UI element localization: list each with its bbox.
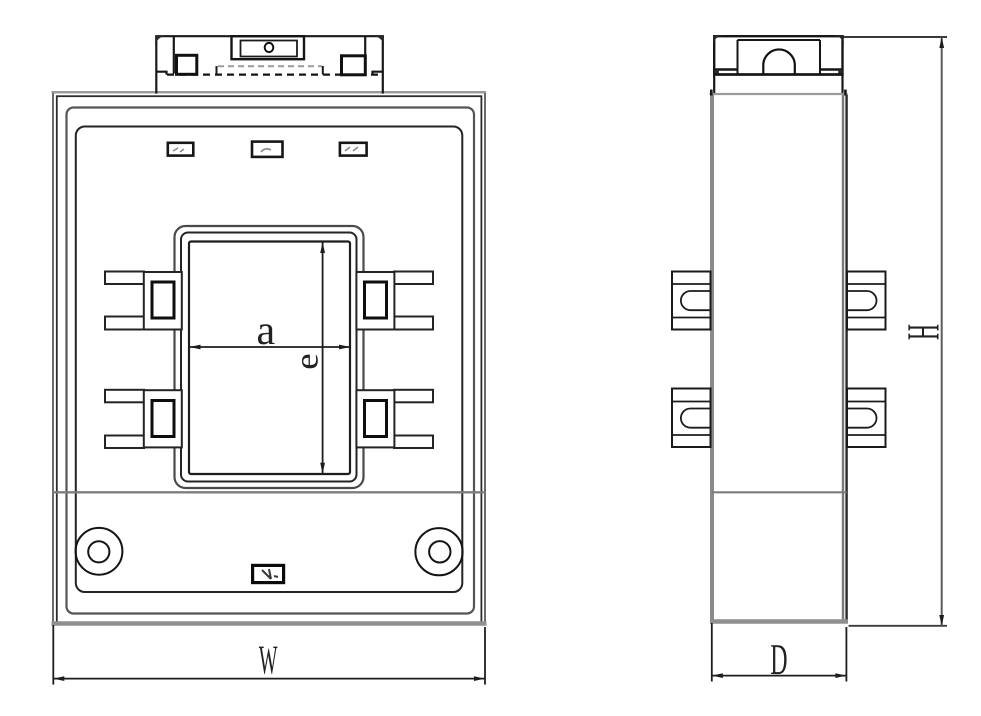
svg-text:a: a xyxy=(256,308,275,354)
svg-text:W: W xyxy=(259,637,278,683)
svg-text:e: e xyxy=(290,353,326,369)
svg-text:D: D xyxy=(770,635,787,684)
svg-text:H: H xyxy=(898,324,949,340)
